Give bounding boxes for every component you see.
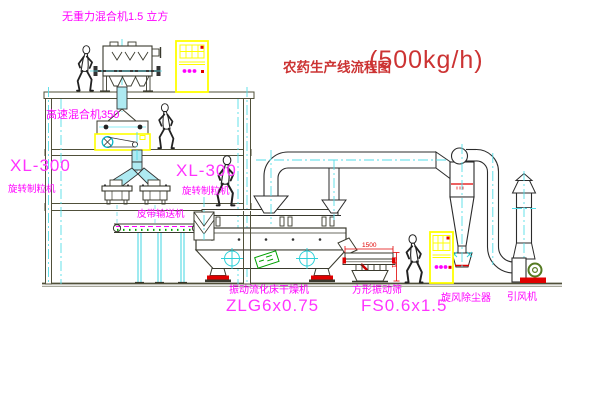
granulator-left xyxy=(102,180,132,204)
label-screen-model: FS0.6x1.5 xyxy=(361,297,448,314)
gravity-free-mixer xyxy=(90,39,165,112)
dimension-screen-length: 1500 xyxy=(362,242,376,249)
label-fan: 引风机 xyxy=(507,293,537,303)
person-second-floor xyxy=(158,104,174,148)
dimension-screen-height: 541 xyxy=(390,257,397,268)
label-dryer-model: ZLG6x0.75 xyxy=(226,297,319,314)
process-flow-diagram: 农药生产线流程图 (500kg/h) 无重力混合机1.5 立方 高速混合机350… xyxy=(0,0,600,403)
granulator-right xyxy=(140,180,170,204)
control-cabinet-top xyxy=(176,41,208,92)
label-granulator-mid-model: XL-300 xyxy=(176,162,237,179)
label-screen-name: 方形振动筛 xyxy=(352,286,402,296)
fluid-bed-dryer xyxy=(196,210,346,283)
label-granulator-left-name: 旋转制粒机 xyxy=(8,185,56,195)
label-granulator-mid-name: 旋转制粒机 xyxy=(182,187,230,197)
diagram-title-capacity: (500kg/h) xyxy=(369,46,484,75)
label-dryer-name: 振动流化床干燥机 xyxy=(229,286,309,296)
label-belt-conveyor: 皮带输送机 xyxy=(137,210,185,220)
induced-draft-fan xyxy=(512,258,546,283)
label-cyclone: 旋风除尘器 xyxy=(441,294,491,304)
label-granulator-left-model: XL-300 xyxy=(10,157,71,174)
person-top-floor xyxy=(77,46,93,91)
person-ground xyxy=(406,235,423,283)
control-cabinet-right xyxy=(430,232,453,283)
label-high-speed-mixer: 高速混合机350 xyxy=(46,110,119,121)
label-gravity-free-mixer: 无重力混合机1.5 立方 xyxy=(62,12,168,23)
